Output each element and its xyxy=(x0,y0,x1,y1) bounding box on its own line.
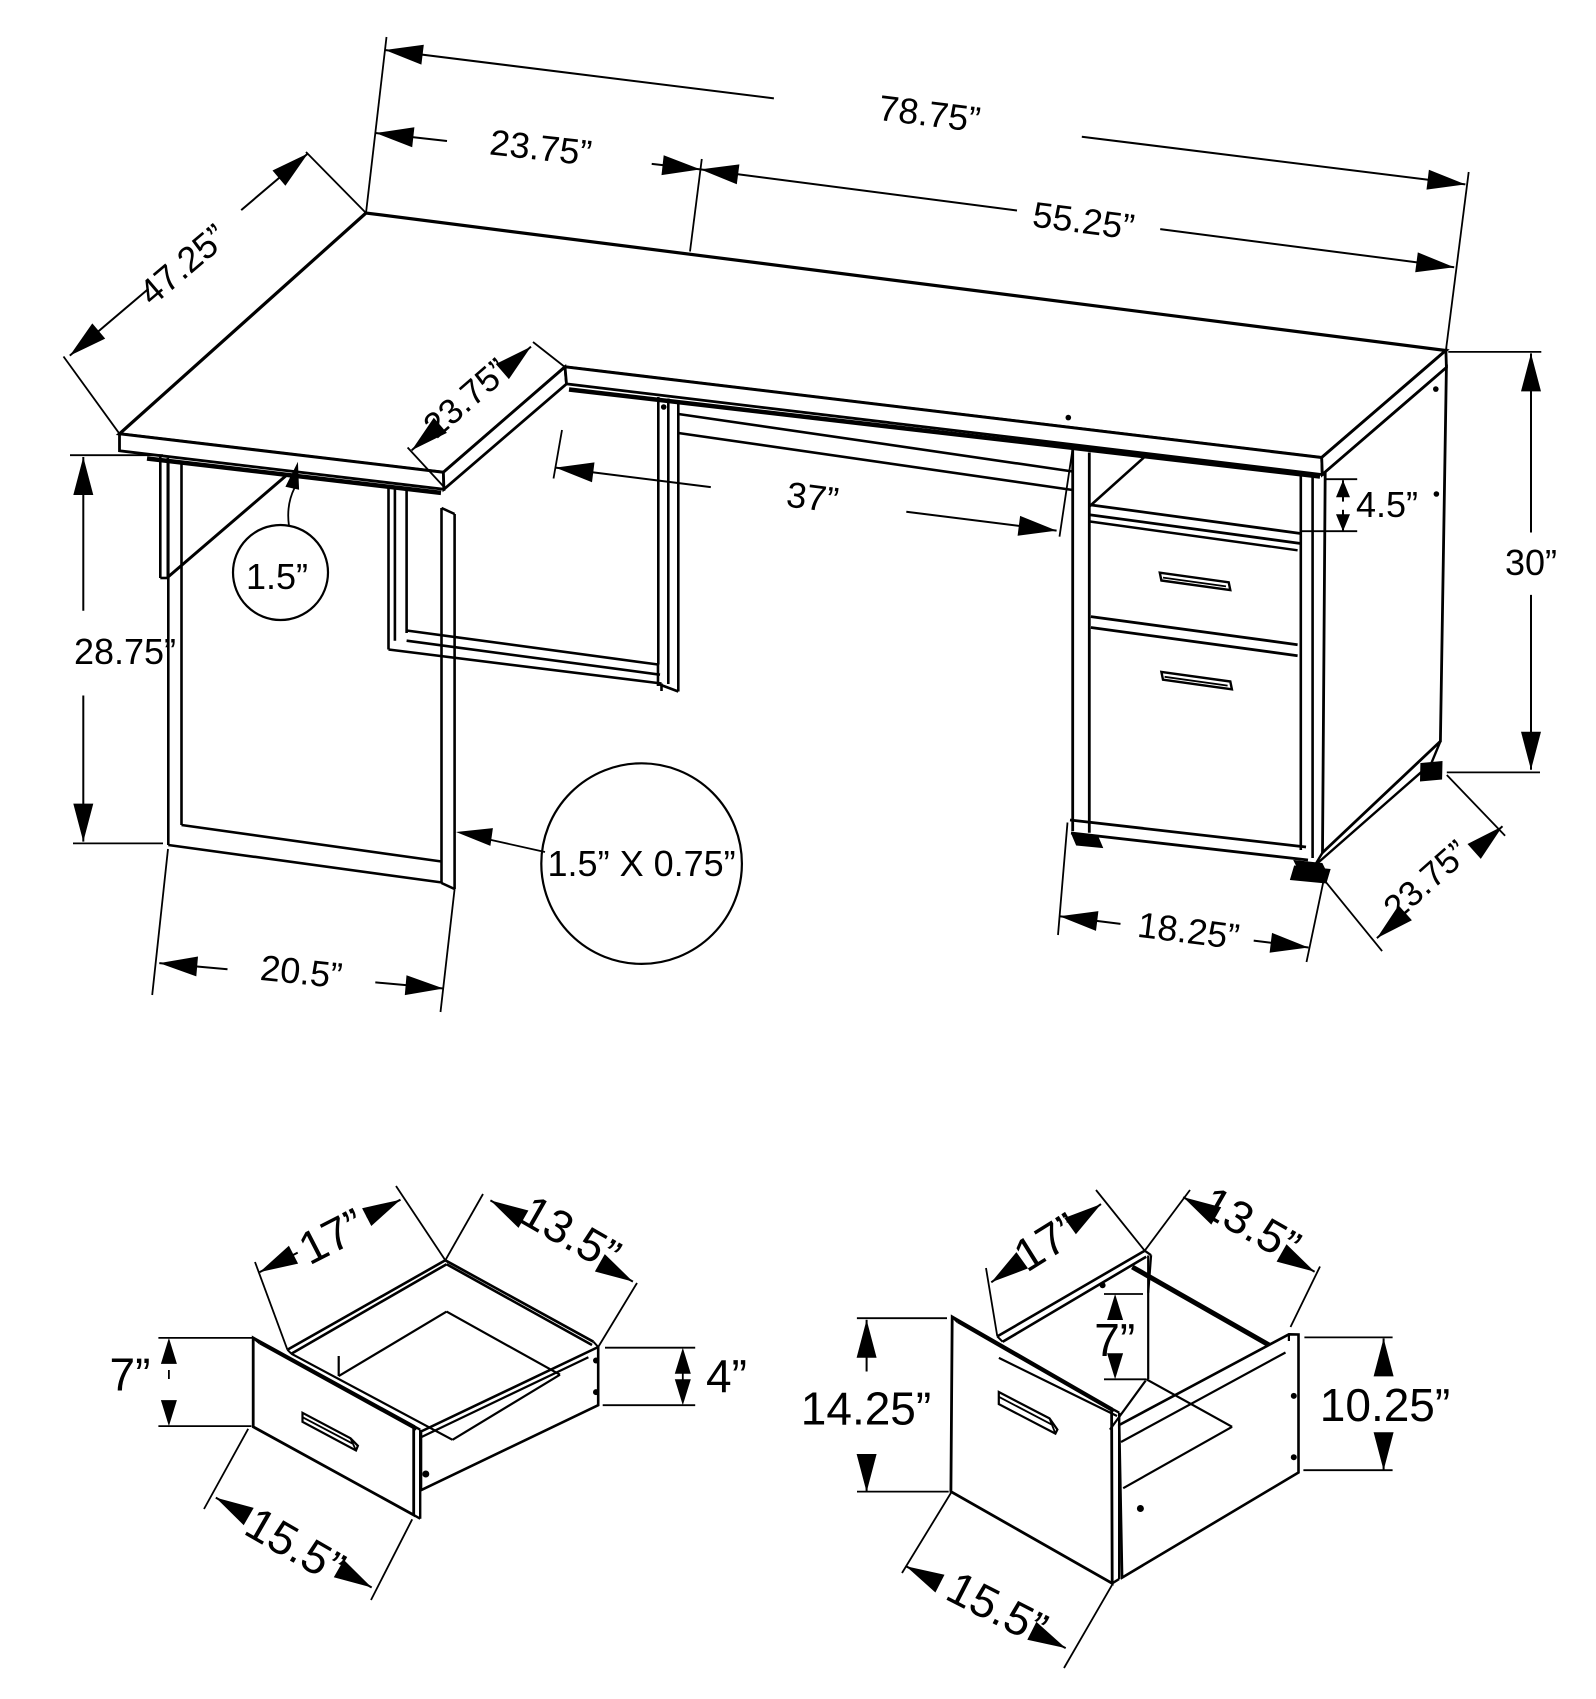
svg-text:4.5”: 4.5” xyxy=(1356,484,1418,525)
svg-text:10.25”: 10.25” xyxy=(1320,1379,1450,1431)
svg-text:1.5” X 0.75”: 1.5” X 0.75” xyxy=(548,843,736,884)
svg-text:7”: 7” xyxy=(1094,1314,1135,1366)
svg-text:4”: 4” xyxy=(706,1350,747,1402)
svg-text:20.5”: 20.5” xyxy=(258,947,344,996)
svg-text:28.75”: 28.75” xyxy=(74,631,176,672)
svg-text:1.5”: 1.5” xyxy=(246,556,308,597)
svg-text:14.25”: 14.25” xyxy=(801,1383,931,1435)
svg-text:37”: 37” xyxy=(784,474,841,521)
svg-text:30”: 30” xyxy=(1505,542,1557,583)
svg-text:7”: 7” xyxy=(110,1349,151,1401)
